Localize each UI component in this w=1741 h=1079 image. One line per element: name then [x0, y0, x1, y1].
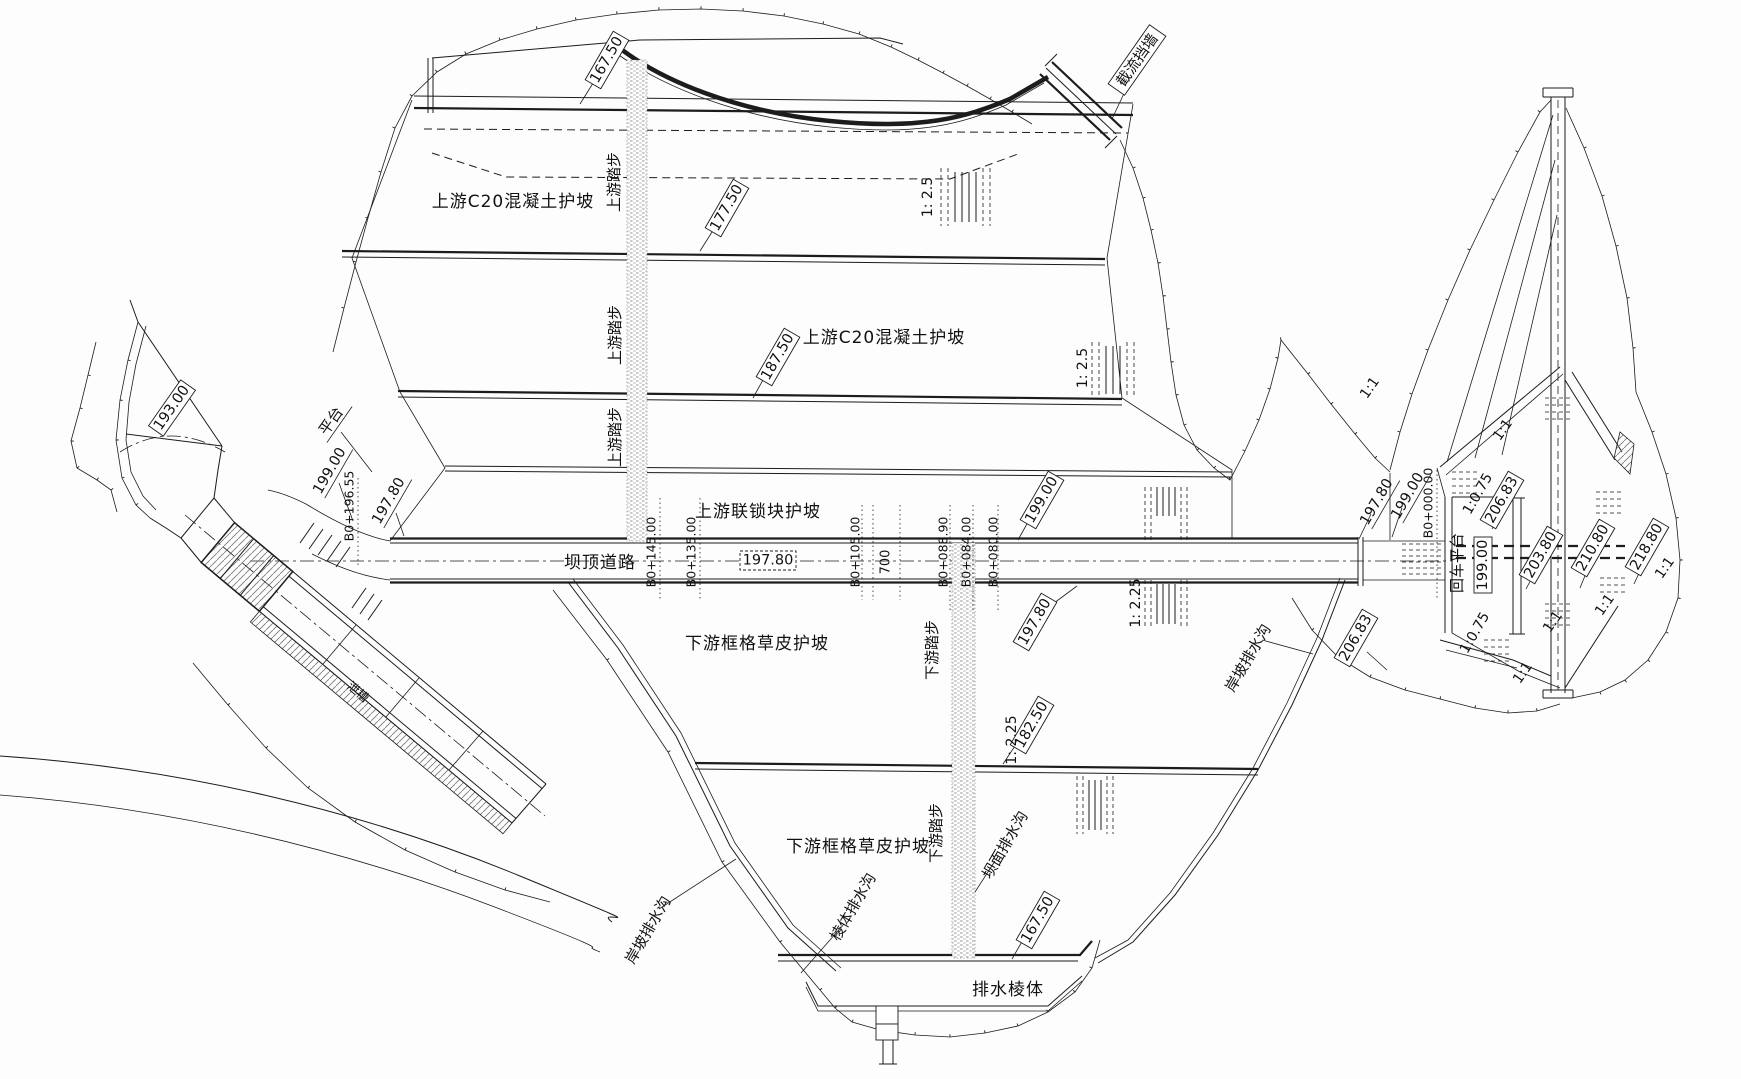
label-turnaround-platform: 回车平台 [1448, 533, 1466, 593]
callout-187-50: 187.50 [756, 328, 800, 385]
label-dam-face-ditch: 坝面排水沟 [978, 808, 1031, 882]
label-upstream-c20-upper: 上游C20混凝土护坡 [432, 192, 595, 212]
label-bank-ditch-left: 岸坡排水沟 [621, 893, 674, 967]
station-b0-088-90: B0+088.90 [936, 517, 951, 588]
slope-1-1-b: 1:1 [1490, 416, 1516, 444]
label-bank-ditch-right: 岸坡排水沟 [1221, 621, 1274, 695]
label-upstream-c20-lower: 上游C20混凝土护坡 [803, 328, 966, 348]
callout-210-80: 210.80 [1571, 519, 1615, 576]
elev-text: 199.00 [1475, 540, 1491, 591]
dim-road-width-700: 700 [879, 550, 894, 575]
slope-1-2-5-a: 1: 2.5 [920, 177, 936, 217]
outlet-structure [876, 1006, 898, 1064]
river-channel [0, 756, 618, 952]
upstream-steps-stripe [627, 60, 647, 541]
label-downstream-steps-2: 下游踏步 [927, 803, 945, 863]
slope-1-2-5-b: 1: 2.5 [1075, 348, 1091, 388]
slope-1-2-25-b: 1: 2.25 [1004, 715, 1020, 764]
callout-197-80-downstream: 197.80 [1013, 593, 1057, 650]
callout-167-50-bottom: 167.50 [1016, 891, 1060, 948]
label-upstream-interlock: 上游联锁块护坡 [695, 502, 821, 522]
drawing-canvas: 上游C20混凝土护坡 上游C20混凝土护坡 上游联锁块护坡 坝顶道路 下游框格草… [0, 0, 1741, 1079]
station-lines [358, 470, 1437, 610]
label-downstream-steps-1: 下游踏步 [923, 620, 941, 680]
labels: 上游C20混凝土护坡 上游C20混凝土护坡 上游联锁块护坡 坝顶道路 下游框格草… [149, 25, 1678, 1000]
dam-plan-drawing: 上游C20混凝土护坡 上游C20混凝土护坡 上游联锁块护坡 坝顶道路 下游框格草… [0, 0, 1741, 1079]
slope-1-1-f: 1:1 [1510, 659, 1536, 687]
slope-1-1-a: 1:1 [1357, 374, 1383, 402]
slope-1-1-e: 1:1 [1652, 554, 1678, 582]
hill-access-road [1543, 88, 1573, 698]
label-downstream-grass-upper: 下游框格草皮护坡 [685, 634, 829, 654]
callout-193-00: 193.00 [149, 380, 196, 436]
label-platform: 平台 [312, 396, 352, 442]
station-b0-080: B0+080.00 [986, 517, 1001, 588]
slope-1-1-d: 1:1 [1592, 591, 1618, 619]
elev-text: 197.80 [743, 553, 794, 569]
callout-206-83-bottom: 206.83 [1334, 609, 1378, 666]
callout-197-80-right: 197.80 [1357, 472, 1400, 529]
station-b0-000: B0+000.00 [1421, 468, 1436, 539]
callout-197-80-left: 197.80 [369, 471, 412, 528]
closure-wall-structure [1040, 54, 1122, 148]
station-b0-196-55: B0+196.55 [342, 471, 357, 542]
label-upstream-steps-2: 上游踏步 [606, 305, 624, 365]
station-b0-135: B0+135.00 [684, 517, 699, 588]
station-b0-145: B0+145.00 [644, 517, 659, 588]
elev-text: 193.00 [151, 383, 193, 434]
closure-dike [612, 42, 1122, 148]
callout-203-80: 203.80 [1519, 526, 1563, 583]
station-b0-084: B0+084.00 [959, 517, 974, 588]
label-prism-ditch: 棱体排水沟 [826, 870, 879, 944]
downstream-steps-stripe [952, 543, 975, 958]
label-upstream-steps-3: 上游踏步 [606, 407, 624, 467]
callout-167-50-top: 167.50 [585, 31, 629, 88]
callout-197-80-road: 197.80 [740, 551, 796, 570]
callout-199-00-crest: 199.00 [1020, 471, 1064, 528]
callout-199-00-platform: 199.00 [1474, 537, 1492, 593]
closure-wall-text: 截流挡墙 [1112, 30, 1161, 89]
station-b0-105: B0+105.00 [848, 517, 863, 588]
label-closure-wall: 截流挡墙 [1108, 25, 1166, 95]
slope-1-2-25-a: 1: 2.25 [1128, 578, 1144, 627]
label-crest-road: 坝顶道路 [564, 553, 636, 573]
callout-177-50: 177.50 [705, 179, 749, 236]
label-downstream-grass-lower: 下游框格草皮护坡 [786, 837, 930, 857]
label-drainage-prism: 排水棱体 [972, 980, 1044, 1000]
slope-1-1-c: 1:1 [1540, 608, 1566, 636]
label-upstream-steps-1: 上游踏步 [605, 152, 623, 212]
